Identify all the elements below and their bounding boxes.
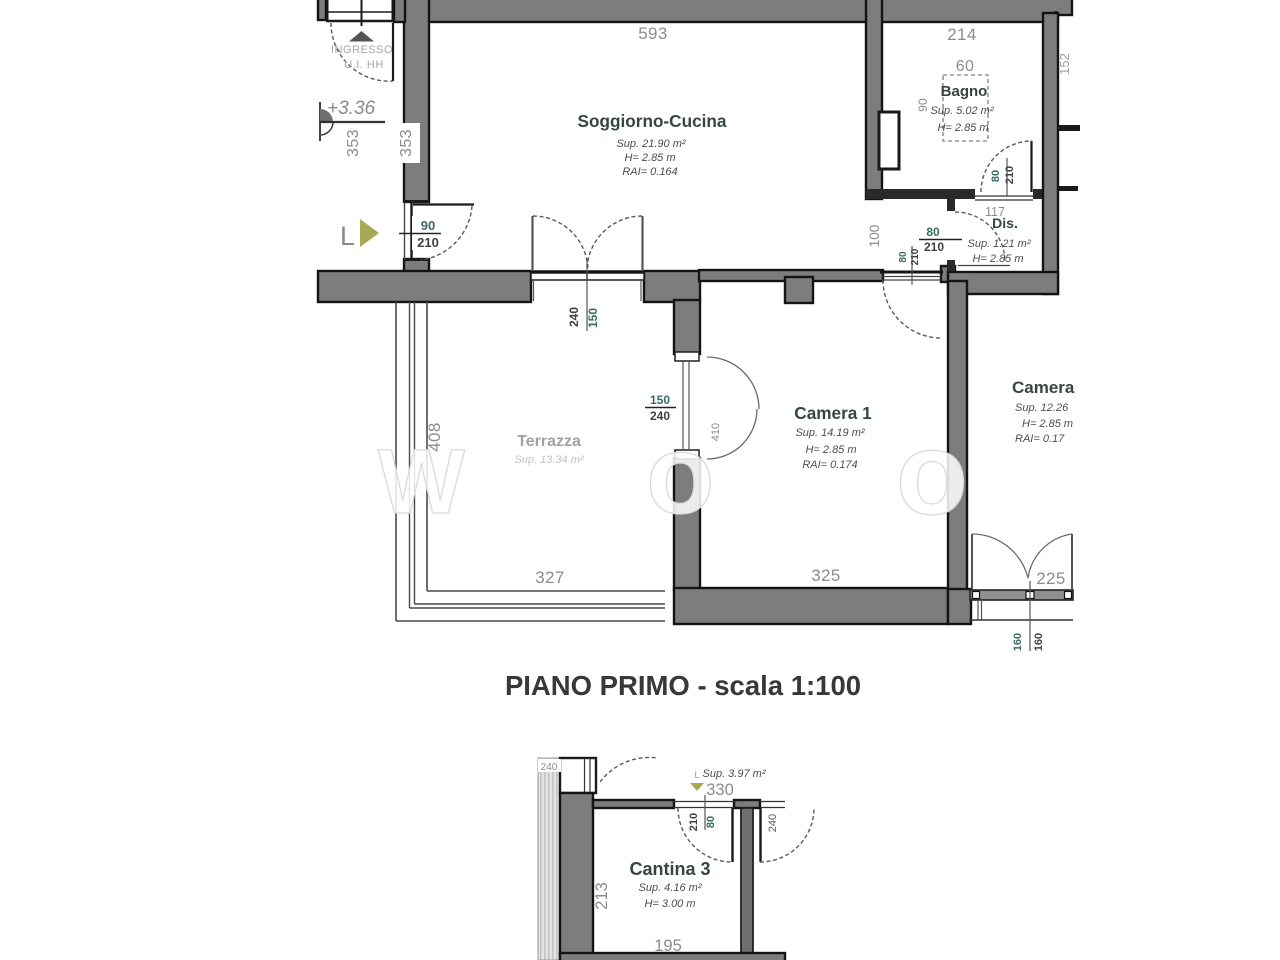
svg-text:Sup. 21.90 m²: Sup. 21.90 m²: [616, 138, 685, 150]
svg-text:Camera 1: Camera 1: [794, 403, 872, 423]
svg-text:240: 240: [767, 814, 779, 832]
svg-text:240: 240: [541, 762, 558, 773]
svg-text:Sup. 5.02 m²: Sup. 5.02 m²: [931, 105, 994, 117]
svg-text:Sup. 3.97 m²: Sup. 3.97 m²: [703, 768, 766, 780]
svg-text:W: W: [378, 431, 465, 533]
svg-text:100: 100: [867, 225, 882, 248]
svg-text:325: 325: [811, 566, 841, 585]
svg-text:RAI= 0.164: RAI= 0.164: [622, 166, 677, 178]
svg-text:160: 160: [1033, 633, 1045, 651]
svg-text:593: 593: [638, 24, 668, 43]
svg-text:U.I. HH: U.I. HH: [344, 59, 384, 71]
svg-text:330: 330: [706, 781, 734, 799]
svg-text:150: 150: [586, 308, 600, 328]
svg-text:Camera: Camera: [1012, 378, 1075, 397]
svg-text:RAI= 0.174: RAI= 0.174: [802, 459, 857, 471]
svg-text:160: 160: [1012, 633, 1024, 651]
svg-text:Sup. 4.16 m²: Sup. 4.16 m²: [639, 882, 702, 894]
svg-text:PIANO PRIMO - scala 1:100: PIANO PRIMO - scala 1:100: [505, 670, 861, 701]
svg-text:INGRESSO: INGRESSO: [331, 44, 393, 56]
svg-text:80: 80: [898, 251, 909, 263]
svg-text:RAI= 0.17: RAI= 0.17: [1015, 433, 1065, 445]
svg-text:80: 80: [990, 170, 1002, 182]
svg-text:H= 2.85 m: H= 2.85 m: [624, 152, 675, 164]
svg-text:L: L: [694, 770, 699, 780]
svg-text:327: 327: [535, 568, 565, 587]
svg-text:152: 152: [1057, 53, 1072, 75]
svg-text:H= 2.85 m: H= 2.85 m: [1022, 418, 1073, 430]
svg-text:Soggiorno-Cucina: Soggiorno-Cucina: [578, 111, 727, 131]
svg-text:240: 240: [567, 307, 581, 327]
svg-text:Sup. 12.26: Sup. 12.26: [1015, 402, 1069, 414]
svg-text:90: 90: [421, 218, 435, 233]
svg-text:353: 353: [345, 129, 362, 157]
svg-text:210: 210: [1004, 166, 1016, 184]
svg-text:L: L: [340, 221, 355, 251]
svg-text:80: 80: [926, 225, 940, 239]
svg-text:Dis.: Dis.: [992, 215, 1018, 231]
svg-text:Bagno: Bagno: [941, 83, 988, 100]
svg-text:Sup. 14.19 m²: Sup. 14.19 m²: [795, 427, 864, 439]
svg-text:353: 353: [398, 129, 415, 157]
svg-text:195: 195: [654, 937, 682, 955]
svg-text:H= 2.85 m: H= 2.85 m: [937, 122, 988, 134]
svg-text:210: 210: [910, 248, 921, 265]
svg-text:210: 210: [417, 235, 439, 250]
svg-text:210: 210: [924, 240, 944, 254]
svg-text:H= 2.85 m: H= 2.85 m: [972, 253, 1023, 265]
svg-text:Cantina 3: Cantina 3: [629, 859, 710, 879]
svg-text:80: 80: [705, 816, 717, 828]
svg-text:214: 214: [947, 25, 977, 44]
svg-text:o: o: [896, 408, 968, 540]
svg-text:Terrazza: Terrazza: [517, 433, 581, 450]
svg-text:213: 213: [593, 882, 611, 910]
svg-text:Sup. 13.34 m²: Sup. 13.34 m²: [514, 454, 583, 466]
svg-text:o: o: [646, 412, 714, 537]
svg-text:60: 60: [956, 58, 975, 75]
svg-text:+3.36: +3.36: [327, 98, 376, 119]
svg-text:H= 3.00 m: H= 3.00 m: [644, 898, 695, 910]
svg-text:210: 210: [688, 813, 700, 831]
svg-text:Sup. 1.21 m²: Sup. 1.21 m²: [968, 238, 1031, 250]
svg-text:90: 90: [916, 98, 930, 112]
svg-text:H= 2.85 m: H= 2.85 m: [805, 444, 856, 456]
svg-text:225: 225: [1036, 569, 1066, 588]
svg-text:150: 150: [650, 393, 670, 407]
